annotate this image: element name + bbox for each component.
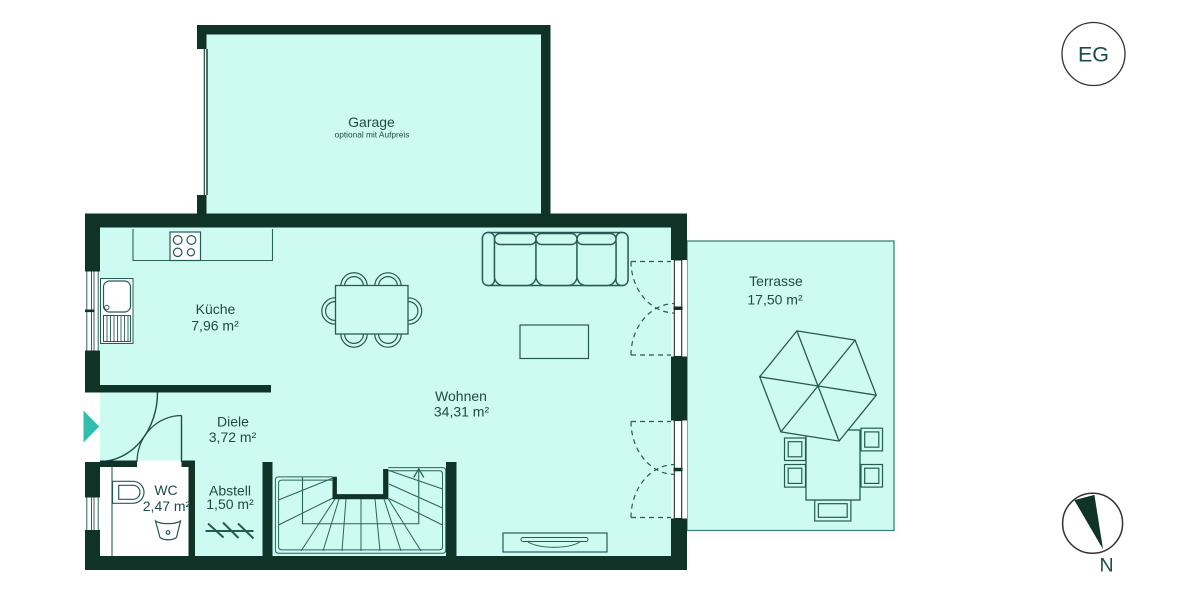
svg-text:EG: EG <box>1078 43 1109 67</box>
svg-text:1,50 m²: 1,50 m² <box>206 496 254 512</box>
svg-text:Terrasse: Terrasse <box>749 273 803 289</box>
svg-text:WC: WC <box>154 482 177 498</box>
svg-text:Diele: Diele <box>217 414 249 430</box>
svg-text:34,31 m²: 34,31 m² <box>434 404 490 420</box>
svg-text:Küche: Küche <box>196 301 236 317</box>
svg-text:3,72 m²: 3,72 m² <box>209 429 257 445</box>
svg-text:Garage: Garage <box>348 114 395 130</box>
svg-text:2,47 m²: 2,47 m² <box>143 498 191 514</box>
svg-text:17,50 m²: 17,50 m² <box>747 292 803 308</box>
svg-text:Wohnen: Wohnen <box>435 388 487 404</box>
svg-text:N: N <box>1099 555 1113 577</box>
svg-text:optional mit Aufpreis: optional mit Aufpreis <box>335 130 410 140</box>
svg-text:7,96 m²: 7,96 m² <box>191 318 239 334</box>
